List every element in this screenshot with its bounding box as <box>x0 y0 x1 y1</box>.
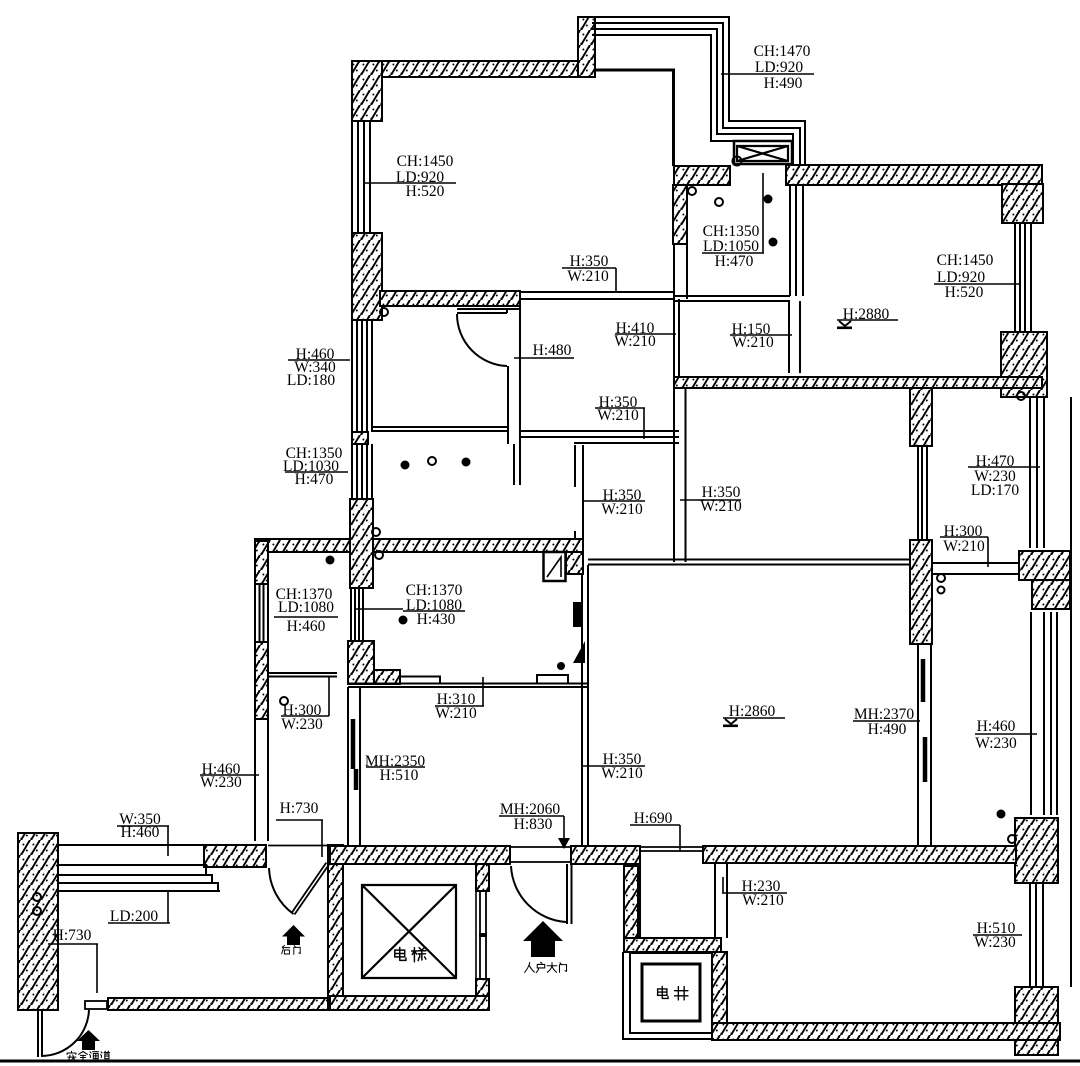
svg-text:H:490: H:490 <box>868 721 907 738</box>
svg-text:W:210: W:210 <box>601 765 643 782</box>
svg-text:W:210: W:210 <box>614 333 656 350</box>
svg-text:W:210: W:210 <box>943 538 985 555</box>
svg-text:H:510: H:510 <box>380 767 419 784</box>
svg-text:CH:1470: CH:1470 <box>754 43 811 60</box>
svg-text:W:210: W:210 <box>567 268 609 285</box>
svg-text:H:470: H:470 <box>295 471 334 488</box>
svg-text:LD:920: LD:920 <box>755 59 803 76</box>
svg-text:CH:1450: CH:1450 <box>937 252 994 269</box>
svg-text:H:730: H:730 <box>53 927 92 944</box>
svg-text:H:460: H:460 <box>121 824 160 841</box>
svg-text:W:230: W:230 <box>281 716 323 733</box>
svg-text:W:230: W:230 <box>975 735 1017 752</box>
svg-text:H:470: H:470 <box>715 253 754 270</box>
svg-text:H:460: H:460 <box>977 718 1016 735</box>
svg-text:H:520: H:520 <box>406 183 445 200</box>
svg-text:H:2860: H:2860 <box>729 703 776 720</box>
svg-text:W:210: W:210 <box>742 892 784 909</box>
svg-text:LD:170: LD:170 <box>971 482 1019 499</box>
svg-text:H:830: H:830 <box>514 816 553 833</box>
svg-text:W:210: W:210 <box>700 498 742 515</box>
svg-text:LD:200: LD:200 <box>110 908 158 925</box>
svg-text:H:480: H:480 <box>533 342 572 359</box>
svg-text:W:210: W:210 <box>601 501 643 518</box>
svg-text:H:490: H:490 <box>764 75 803 92</box>
svg-text:W:210: W:210 <box>597 407 639 424</box>
svg-text:H:520: H:520 <box>945 284 984 301</box>
svg-text:H:690: H:690 <box>634 810 673 827</box>
svg-text:W:230: W:230 <box>974 934 1016 951</box>
svg-text:H:2880: H:2880 <box>843 306 890 323</box>
svg-text:H:430: H:430 <box>417 611 456 628</box>
svg-text:H:460: H:460 <box>287 618 326 635</box>
svg-text:LD:1080: LD:1080 <box>278 599 334 616</box>
svg-text:LD:180: LD:180 <box>287 372 335 389</box>
svg-text:W:210: W:210 <box>435 705 477 722</box>
svg-text:CH:1450: CH:1450 <box>397 153 454 170</box>
svg-text:W:230: W:230 <box>200 774 242 791</box>
svg-text:H:730: H:730 <box>280 800 319 817</box>
svg-text:W:210: W:210 <box>732 334 774 351</box>
